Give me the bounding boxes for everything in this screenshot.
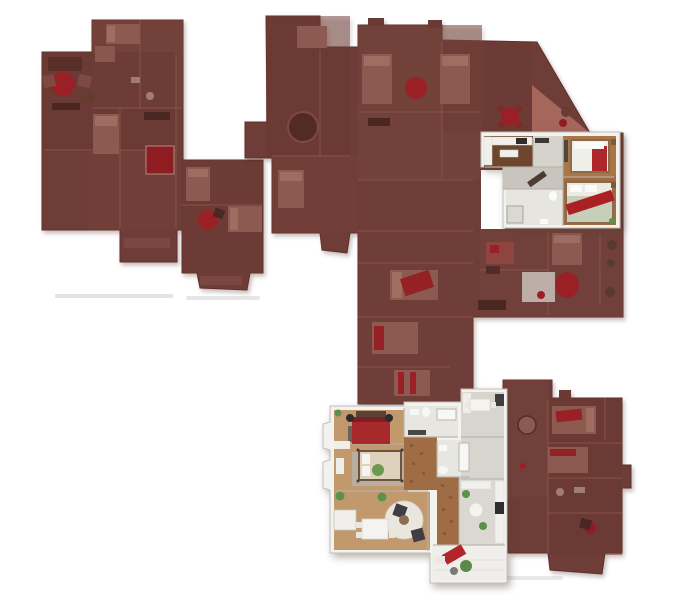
red-dining-set [501, 108, 519, 126]
bathtub[interactable] [459, 443, 469, 471]
room-hall[interactable] [503, 167, 563, 189]
armchair [42, 74, 56, 88]
red-sofa[interactable] [352, 419, 390, 444]
tile-dot[interactable] [410, 480, 413, 483]
red-rug [146, 146, 174, 174]
red-stripe [398, 372, 404, 394]
canopy-post[interactable] [401, 449, 404, 452]
chair[interactable] [491, 402, 496, 408]
bathroom-fixture [95, 46, 115, 62]
bed-pillow [95, 116, 117, 126]
room-hall-tiles[interactable] [404, 437, 437, 490]
table[interactable] [470, 399, 490, 411]
chair[interactable] [389, 522, 395, 528]
chair[interactable] [356, 532, 362, 538]
dining-table[interactable] [362, 519, 388, 539]
tile-dot[interactable] [412, 462, 415, 465]
bed-pillow [230, 208, 238, 230]
canopy-post[interactable] [401, 480, 404, 483]
bed-pillow [280, 172, 302, 181]
red-blanket[interactable] [592, 146, 607, 171]
plant[interactable] [479, 522, 487, 530]
bed-pillow[interactable] [570, 185, 582, 192]
plant-pot[interactable] [450, 567, 458, 575]
sofa [48, 57, 82, 71]
tile-dot[interactable] [442, 508, 445, 511]
block-southeast [503, 380, 631, 574]
light-pocket [481, 170, 505, 229]
plant[interactable] [336, 492, 345, 501]
tile-dot[interactable] [449, 496, 452, 499]
bed-pillow [554, 235, 580, 243]
table [486, 266, 500, 274]
tile-dot[interactable] [420, 452, 423, 455]
red-pillow [550, 449, 576, 456]
red-cushion [490, 245, 499, 253]
toilet[interactable] [422, 407, 430, 417]
tile-dot[interactable] [441, 484, 444, 487]
toilet[interactable] [438, 466, 448, 474]
fridge[interactable] [495, 394, 504, 406]
red-plant [520, 463, 526, 469]
coffee-table[interactable] [399, 515, 409, 525]
tile-dot[interactable] [450, 520, 453, 523]
plant[interactable] [372, 464, 384, 476]
stove[interactable] [495, 502, 504, 514]
cooktop[interactable] [516, 138, 527, 144]
console[interactable] [334, 441, 350, 449]
shelf [144, 112, 170, 120]
chimney [428, 20, 442, 28]
sofa-back[interactable] [352, 417, 390, 422]
block-northwest [42, 20, 263, 290]
bed-pillow [392, 272, 402, 298]
sink[interactable] [410, 409, 419, 415]
kitchen-counter[interactable] [461, 481, 491, 489]
nightstand[interactable] [611, 139, 616, 145]
plant[interactable] [335, 410, 342, 417]
plant[interactable] [462, 490, 470, 498]
plant [86, 93, 94, 101]
plant[interactable] [460, 560, 472, 572]
canopy-post[interactable] [357, 480, 360, 483]
plant[interactable] [609, 218, 615, 224]
toilet[interactable] [549, 191, 557, 201]
room-tint [503, 380, 548, 497]
floorplan-stage [0, 0, 700, 600]
bed-pillow[interactable] [362, 454, 370, 464]
red-pillow [374, 326, 384, 350]
bathtub[interactable] [437, 409, 456, 420]
bed-pillow [364, 56, 390, 66]
sink[interactable] [540, 219, 548, 224]
armchair [77, 74, 92, 88]
plant[interactable] [378, 493, 387, 502]
bed-pillow [586, 408, 594, 432]
bed-pillow[interactable] [362, 466, 370, 476]
bathtub [574, 487, 585, 493]
speaker[interactable] [385, 414, 393, 422]
bed-pillow [107, 26, 115, 42]
vanity[interactable] [408, 430, 426, 435]
red-stripe [410, 372, 416, 394]
bed-pillow[interactable] [585, 185, 597, 192]
round-table [518, 416, 536, 434]
closet[interactable] [535, 138, 549, 143]
red-plant [559, 119, 567, 127]
bed-pillow [188, 169, 208, 177]
plant [607, 259, 615, 267]
bed-pillow [442, 56, 468, 66]
room-hall-tiles[interactable] [437, 477, 459, 545]
sink [131, 77, 140, 83]
window-seat [200, 276, 242, 285]
tile-dot[interactable] [422, 472, 425, 475]
sink[interactable] [439, 445, 447, 451]
console [52, 103, 80, 110]
side-table[interactable] [437, 556, 445, 564]
white-pockets [481, 170, 505, 229]
plant [561, 107, 571, 117]
chimney [368, 18, 384, 26]
red-rug [555, 272, 579, 298]
floorplan-svg [0, 0, 700, 600]
shadow-streak [186, 296, 260, 300]
nightstand[interactable] [611, 182, 616, 188]
wardrobe[interactable] [564, 140, 568, 162]
round-rug [288, 112, 318, 142]
chair[interactable] [356, 522, 362, 528]
chair[interactable] [465, 402, 470, 408]
shadow-streak [55, 294, 173, 298]
bed-pillow[interactable] [574, 142, 604, 149]
red-rug [405, 77, 427, 99]
toilet [556, 488, 564, 496]
desk [368, 118, 390, 126]
kitchen-counter [478, 300, 506, 310]
window-seat [124, 238, 170, 248]
tile-dot[interactable] [410, 444, 413, 447]
toilet [146, 92, 154, 100]
canopy-post[interactable] [357, 449, 360, 452]
chimney [559, 390, 571, 398]
kitchen-island[interactable] [500, 150, 518, 157]
dresser[interactable] [336, 458, 344, 474]
shower[interactable] [507, 206, 523, 223]
plant [607, 240, 617, 250]
chair[interactable] [389, 532, 395, 538]
plant [605, 287, 615, 297]
red-plant [537, 291, 545, 299]
island-table[interactable] [469, 503, 483, 517]
white-sofa[interactable] [334, 510, 356, 530]
kitchen-counter[interactable] [484, 137, 492, 165]
bed [297, 26, 327, 48]
tile-dot[interactable] [443, 532, 446, 535]
apartment-bottom-center[interactable] [323, 389, 507, 583]
speaker[interactable] [346, 414, 354, 422]
